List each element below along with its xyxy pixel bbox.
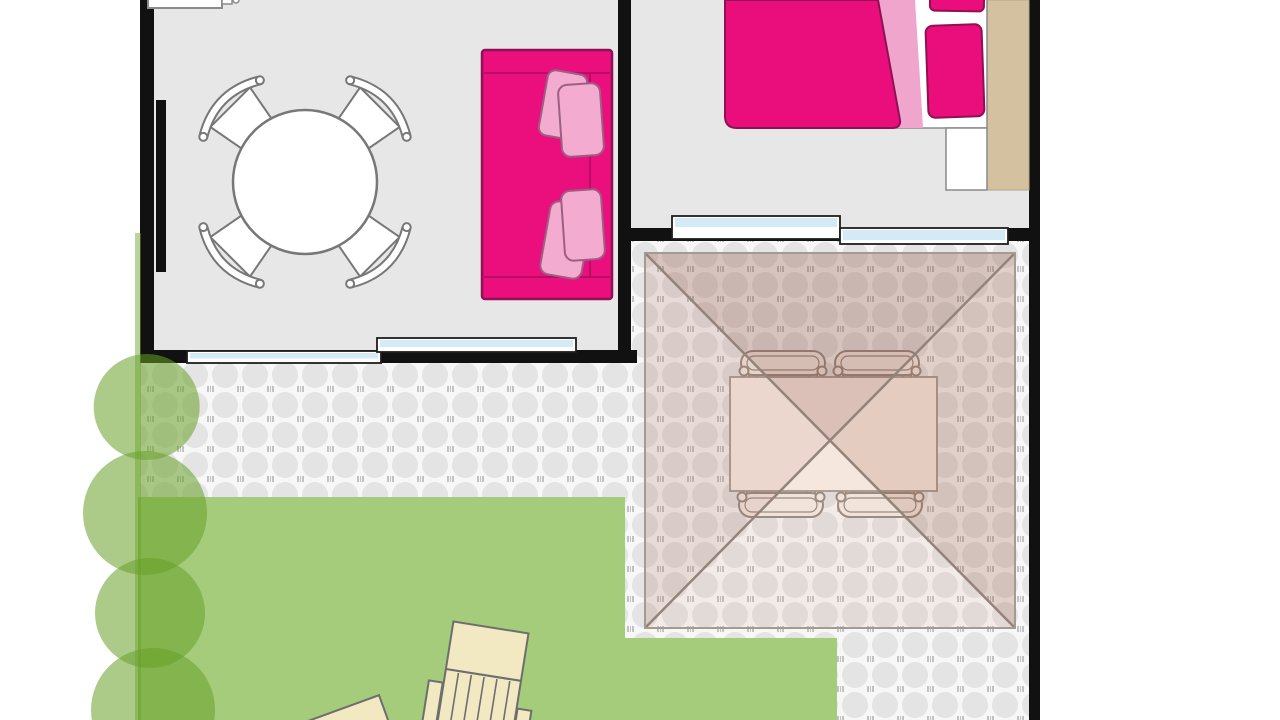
bed-pillow-top xyxy=(930,0,984,11)
round-dining-table[interactable] xyxy=(233,110,377,254)
sofa-cushion xyxy=(558,83,605,158)
sofa[interactable] xyxy=(482,50,612,299)
wall-divider xyxy=(618,0,631,363)
pergola-canopy[interactable] xyxy=(645,253,1015,628)
bed-headboard xyxy=(987,0,1029,190)
wall-right xyxy=(1029,0,1040,720)
bed-pillow xyxy=(925,24,984,118)
sofa-cushion xyxy=(561,189,606,262)
radiator[interactable] xyxy=(156,100,166,272)
window-glass xyxy=(843,230,1005,240)
tree[interactable] xyxy=(83,451,207,575)
tree[interactable] xyxy=(94,354,200,460)
cabinet-handle xyxy=(233,0,239,3)
wall-left xyxy=(140,0,154,363)
window-glass xyxy=(675,218,837,227)
floor-plan-drawing xyxy=(0,0,1280,720)
window-glass xyxy=(190,353,378,359)
nightstand[interactable] xyxy=(946,128,987,190)
floor-plan-canvas xyxy=(0,0,1280,720)
window-glass xyxy=(380,340,573,347)
cabinet-knob xyxy=(222,0,232,4)
bed-duvet xyxy=(725,0,900,128)
